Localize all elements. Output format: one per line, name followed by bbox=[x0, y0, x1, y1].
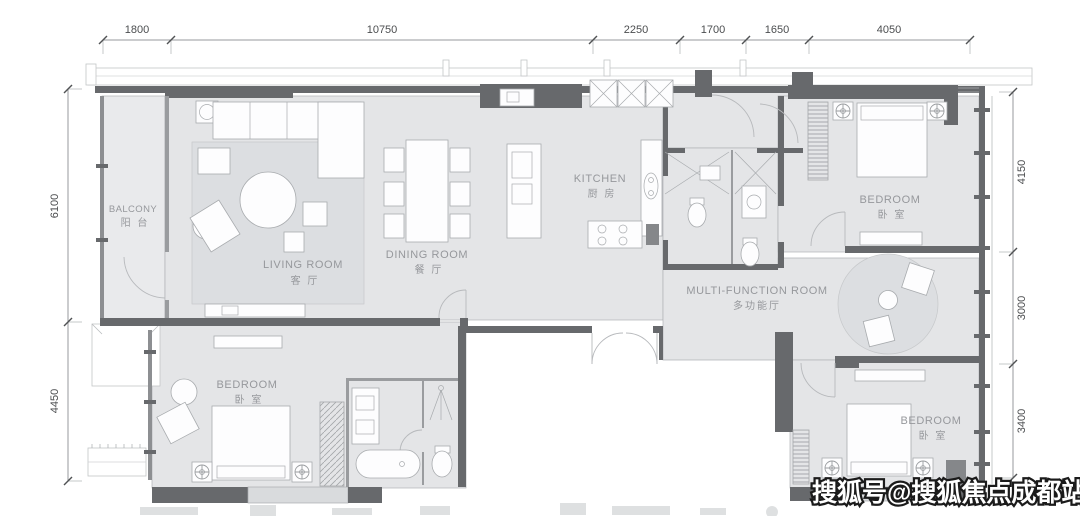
dim-right-2: 3400 bbox=[1016, 409, 1028, 433]
ottoman-small bbox=[284, 232, 304, 252]
dining-room-label-cn: 餐 厅 bbox=[415, 263, 444, 276]
floor-cushion bbox=[863, 315, 895, 347]
kitchen-label-cn: 厨 房 bbox=[588, 187, 617, 200]
bedroom-br-label-en: BEDROOM bbox=[900, 415, 961, 427]
dining-chair bbox=[384, 214, 404, 238]
balcony-label-en: BALCONY bbox=[109, 204, 157, 215]
fixture-symbol bbox=[836, 104, 850, 118]
living-room-furniture bbox=[190, 101, 364, 317]
fixture-symbol bbox=[930, 104, 944, 118]
balcony-label-cn: 阳 台 bbox=[121, 216, 150, 229]
dim-top-5: 4050 bbox=[877, 24, 901, 36]
roof-canopy bbox=[86, 60, 1032, 85]
living-room-label-en: LIVING ROOM bbox=[263, 259, 343, 271]
watermark-text: 搜狐号@搜狐焦点成都站 bbox=[812, 478, 1080, 507]
dim-top-1: 10750 bbox=[367, 24, 398, 36]
toilet-icon bbox=[741, 238, 759, 266]
multi-function-label-cn: 多功能厅 bbox=[733, 299, 781, 312]
coffee-table bbox=[240, 172, 296, 228]
bench bbox=[860, 232, 922, 245]
dining-furniture bbox=[384, 140, 470, 242]
toilet-icon bbox=[432, 446, 452, 477]
duct-wall bbox=[775, 332, 793, 432]
dim-top-4: 1650 bbox=[765, 24, 789, 36]
chaise-lounge bbox=[318, 102, 364, 178]
tv-console bbox=[205, 304, 305, 317]
bath-sink bbox=[700, 166, 720, 180]
dimension-ticks-right bbox=[999, 88, 1017, 482]
vanity-sink bbox=[742, 186, 766, 218]
dim-left-0: 6100 bbox=[49, 194, 61, 218]
dining-chair bbox=[384, 148, 404, 172]
bench bbox=[855, 370, 925, 381]
kitchen-sink-top bbox=[500, 89, 534, 106]
dining-chair bbox=[450, 182, 470, 206]
dim-right-1: 3000 bbox=[1016, 296, 1028, 320]
bedroom-tr-label-en: BEDROOM bbox=[859, 194, 920, 206]
dimension-line-right: 4150 3000 3400 bbox=[999, 88, 1028, 482]
dim-top-0: 1800 bbox=[125, 24, 149, 36]
fixture-symbol bbox=[916, 461, 930, 475]
dimension-line-top: 1800 10750 2250 1700 1650 4050 bbox=[99, 24, 974, 54]
bedroom-br-label-cn: 卧 室 bbox=[919, 429, 948, 442]
dining-chair bbox=[384, 182, 404, 206]
toilet-icon bbox=[688, 198, 706, 227]
dining-chair bbox=[450, 214, 470, 238]
multi-function-label-en: MULTI-FUNCTION ROOM bbox=[686, 285, 827, 297]
dimension-line-left: 6100 4450 bbox=[49, 85, 82, 485]
dim-left-1: 4450 bbox=[49, 389, 61, 413]
multi-function-furniture bbox=[838, 254, 938, 354]
round-table bbox=[879, 291, 898, 310]
fixture-symbol bbox=[295, 465, 309, 479]
floor-plan-page: BALCONY 阳 台 LIVING ROOM 客 厅 DINING ROOM … bbox=[0, 0, 1080, 516]
side-table bbox=[171, 379, 197, 405]
kitchen-label-en: KITCHEN bbox=[574, 173, 626, 185]
living-room-label-cn: 客 厅 bbox=[291, 274, 320, 287]
bed bbox=[857, 103, 927, 177]
fixture-symbol bbox=[195, 465, 209, 479]
bathtub bbox=[356, 450, 420, 478]
bedroom-bl-label-en: BEDROOM bbox=[216, 379, 277, 391]
wardrobe-hatched bbox=[793, 430, 809, 484]
dining-room-label-en: DINING ROOM bbox=[386, 249, 468, 261]
ottoman bbox=[303, 202, 327, 226]
bedroom-bl-label-cn: 卧 室 bbox=[235, 393, 264, 406]
dining-chair bbox=[450, 148, 470, 172]
dim-right-0: 4150 bbox=[1016, 160, 1028, 184]
dimension-ticks-top bbox=[99, 36, 974, 54]
floor-plan-drawing: BALCONY 阳 台 LIVING ROOM 客 厅 DINING ROOM … bbox=[0, 0, 1080, 516]
armchair bbox=[198, 148, 230, 174]
wardrobe-hatched bbox=[808, 102, 828, 180]
appliance bbox=[646, 224, 659, 245]
bed bbox=[212, 406, 290, 480]
dimension-ticks-left bbox=[64, 85, 82, 485]
cooktop-counter bbox=[588, 221, 642, 248]
wardrobe-hatched bbox=[320, 402, 344, 486]
dim-top-3: 1700 bbox=[701, 24, 725, 36]
bench bbox=[214, 336, 282, 348]
fixture-symbol bbox=[825, 461, 839, 475]
dining-table bbox=[406, 140, 448, 242]
bedroom-tr-label-cn: 卧 室 bbox=[878, 208, 907, 221]
dim-top-2: 2250 bbox=[624, 24, 648, 36]
bottom-artifacts bbox=[140, 503, 778, 516]
